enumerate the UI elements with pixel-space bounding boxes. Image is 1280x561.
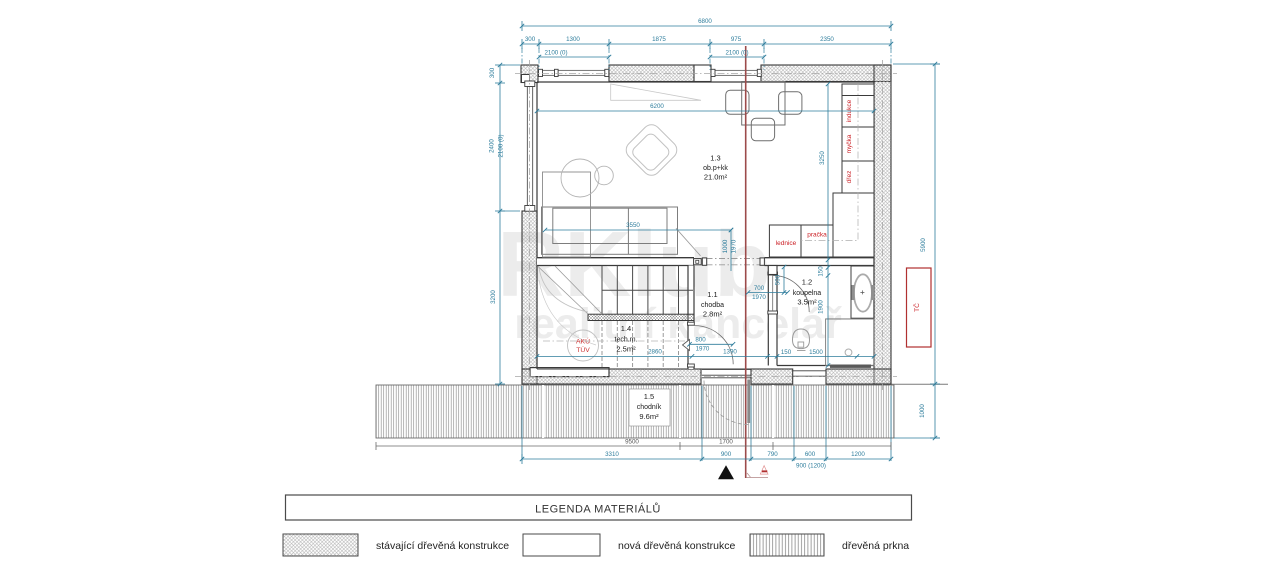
svg-text:2100 (0): 2100 (0) <box>725 50 748 57</box>
svg-text:1.3: 1.3 <box>710 154 720 163</box>
svg-text:800: 800 <box>695 337 706 344</box>
svg-text:myčka: myčka <box>846 134 853 153</box>
svg-text:21.0m²: 21.0m² <box>704 173 728 182</box>
svg-text:1875: 1875 <box>652 36 666 43</box>
svg-text:lednice: lednice <box>776 240 797 247</box>
svg-text:1500: 1500 <box>809 349 823 356</box>
svg-text:790: 790 <box>767 451 778 458</box>
svg-text:stávající dřevěná konstrukce: stávající dřevěná konstrukce <box>376 540 509 552</box>
svg-text:300: 300 <box>525 36 536 43</box>
svg-text:1970: 1970 <box>696 346 710 353</box>
svg-text:900: 900 <box>721 451 732 458</box>
svg-text:1970: 1970 <box>731 239 738 253</box>
svg-text:300: 300 <box>489 67 496 78</box>
svg-text:TČ: TČ <box>912 303 921 312</box>
svg-text:6800: 6800 <box>698 18 712 25</box>
svg-text:1200: 1200 <box>851 451 865 458</box>
svg-text:2350: 2350 <box>820 36 834 43</box>
svg-text:chodník: chodník <box>637 404 662 411</box>
svg-text:1390: 1390 <box>723 349 737 356</box>
svg-text:150: 150 <box>818 266 825 277</box>
svg-text:1000: 1000 <box>722 239 729 253</box>
svg-text:6200: 6200 <box>650 103 664 110</box>
svg-text:2.8m²: 2.8m² <box>703 310 723 319</box>
svg-text:2860: 2860 <box>648 348 662 355</box>
svg-text:1.1: 1.1 <box>707 290 717 299</box>
svg-text:975: 975 <box>731 36 742 43</box>
svg-text:700: 700 <box>754 285 765 292</box>
svg-text:1300: 1300 <box>566 36 580 43</box>
svg-text:2100 (0): 2100 (0) <box>498 134 505 157</box>
svg-text:3250: 3250 <box>819 151 826 165</box>
svg-text:tech.m.: tech.m. <box>615 337 638 344</box>
svg-text:chodba: chodba <box>701 302 724 309</box>
svg-text:TÚV: TÚV <box>576 345 590 354</box>
svg-text:2400: 2400 <box>489 139 496 153</box>
svg-text:1.4: 1.4 <box>621 324 631 333</box>
svg-text:1.2: 1.2 <box>802 278 812 287</box>
svg-text:LEGENDA MATERIÁLŮ: LEGENDA MATERIÁLŮ <box>535 503 661 516</box>
svg-text:1700: 1700 <box>719 439 733 446</box>
svg-text:koupelna: koupelna <box>793 290 822 297</box>
svg-text:3.5m²: 3.5m² <box>797 298 817 307</box>
svg-text:2100 (0): 2100 (0) <box>544 50 567 57</box>
svg-text:1000: 1000 <box>919 404 926 418</box>
svg-text:dřez: dřez <box>846 171 853 184</box>
svg-text:3200: 3200 <box>490 290 497 304</box>
svg-text:150: 150 <box>781 349 792 356</box>
svg-text:dřevěná prkna: dřevěná prkna <box>842 540 909 552</box>
svg-text:nová dřevěná konstrukce: nová dřevěná konstrukce <box>618 540 735 552</box>
svg-text:ob.p+kk: ob.p+kk <box>703 165 728 172</box>
svg-text:1970: 1970 <box>752 294 766 301</box>
svg-text:3310: 3310 <box>605 451 619 458</box>
svg-text:1.5: 1.5 <box>644 392 654 401</box>
svg-text:3550: 3550 <box>626 222 640 229</box>
svg-text:1900: 1900 <box>818 300 825 314</box>
svg-text:5900: 5900 <box>920 238 927 252</box>
svg-text:pračka: pračka <box>807 232 827 239</box>
svg-text:500: 500 <box>775 274 782 285</box>
svg-text:2.5m²: 2.5m² <box>616 345 636 354</box>
svg-text:9.6m²: 9.6m² <box>639 412 659 421</box>
svg-text:600: 600 <box>805 451 816 458</box>
svg-text:900 (1200): 900 (1200) <box>796 463 826 470</box>
svg-text:9500: 9500 <box>625 439 639 446</box>
